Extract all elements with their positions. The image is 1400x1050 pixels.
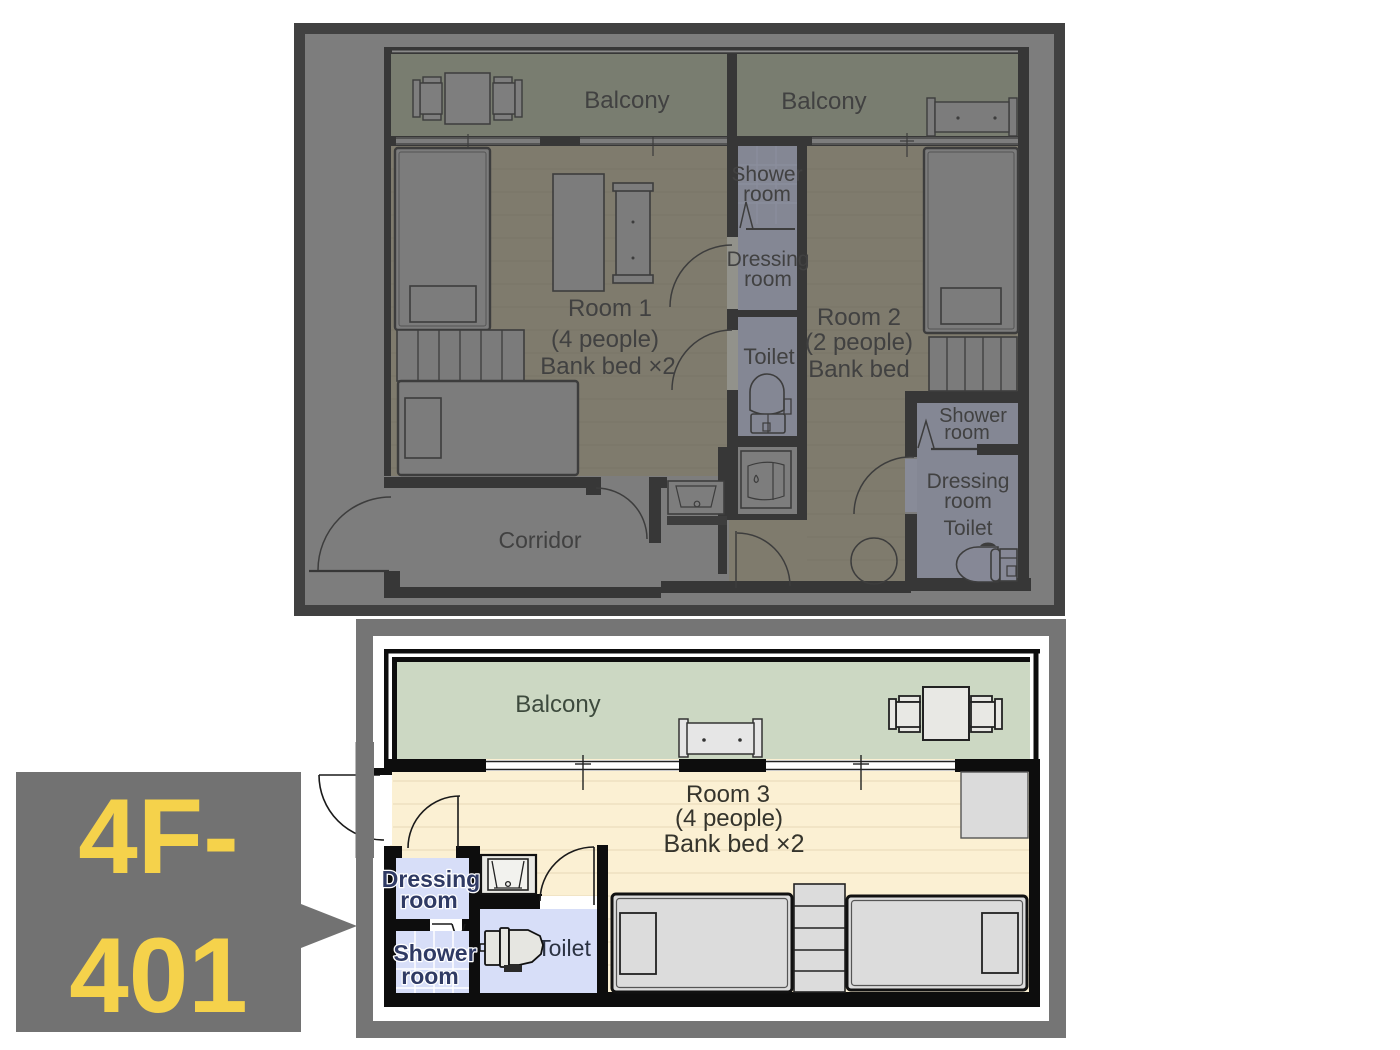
svg-text:Toilet: Toilet <box>943 517 992 540</box>
svg-text:Bank bed ×2: Bank bed ×2 <box>663 830 804 858</box>
svg-text:room: room <box>400 887 458 913</box>
svg-text:Toilet: Toilet <box>743 344 794 369</box>
svg-text:room: room <box>944 490 992 513</box>
svg-text:(4 people): (4 people) <box>675 805 783 832</box>
svg-text:room: room <box>944 422 990 444</box>
svg-text:Balcony: Balcony <box>515 691 600 718</box>
svg-text:Bank bed ×2: Bank bed ×2 <box>540 353 675 380</box>
svg-text:Room 2: Room 2 <box>817 304 901 331</box>
svg-text:(2 people): (2 people) <box>805 329 913 356</box>
svg-text:Balcony: Balcony <box>584 87 669 114</box>
svg-text:Room 1: Room 1 <box>568 295 652 322</box>
svg-text:(4 people): (4 people) <box>551 326 659 353</box>
svg-text:Room 3: Room 3 <box>686 781 770 808</box>
svg-text:Balcony: Balcony <box>781 88 866 115</box>
svg-text:room: room <box>744 268 792 291</box>
svg-text:Toilet: Toilet <box>537 935 591 961</box>
svg-text:room: room <box>743 183 791 206</box>
svg-text:Bank bed: Bank bed <box>808 356 909 383</box>
svg-text:Corridor: Corridor <box>498 527 581 553</box>
svg-text:room: room <box>401 963 459 989</box>
